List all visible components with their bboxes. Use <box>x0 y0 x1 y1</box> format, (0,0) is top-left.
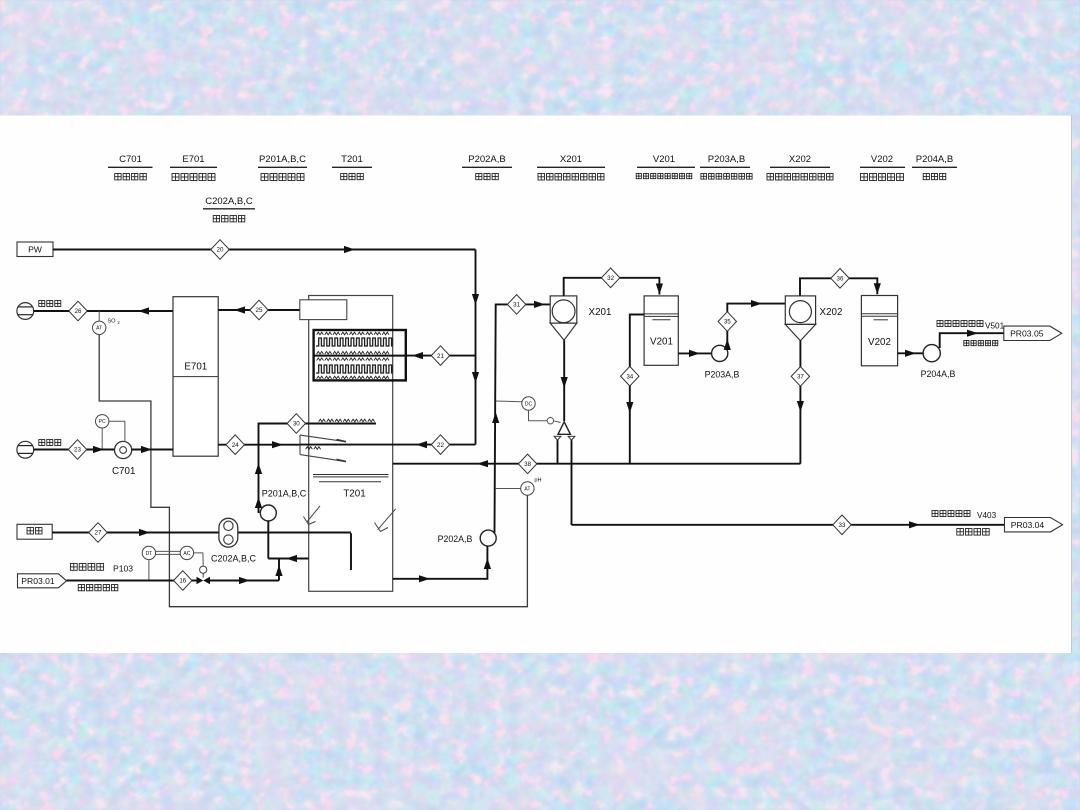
svg-text:P202A,B: P202A,B <box>438 534 473 544</box>
svg-text:V202: V202 <box>868 337 891 348</box>
svg-text:P204A,B: P204A,B <box>921 369 956 379</box>
svg-text:C202A,B,C: C202A,B,C <box>205 196 253 207</box>
svg-text:P204A,B: P204A,B <box>916 154 954 165</box>
svg-text:C202A,B,C: C202A,B,C <box>211 554 257 564</box>
svg-text:32: 32 <box>607 275 614 282</box>
svg-text:PC: PC <box>99 419 106 425</box>
svg-text:V201: V201 <box>650 337 673 348</box>
svg-text:38: 38 <box>524 461 531 468</box>
svg-text:C701: C701 <box>112 466 135 477</box>
svg-text:25: 25 <box>256 307 263 314</box>
svg-text:X202: X202 <box>820 307 843 318</box>
svg-text:X202: X202 <box>789 154 811 165</box>
svg-text:C701: C701 <box>119 154 142 165</box>
svg-text:E701: E701 <box>184 362 207 373</box>
svg-text:P203A,B: P203A,B <box>705 370 740 380</box>
svg-text:V403: V403 <box>977 511 997 520</box>
svg-text:T201: T201 <box>341 154 363 165</box>
svg-text:37: 37 <box>797 374 804 381</box>
svg-text:AC: AC <box>183 551 190 557</box>
svg-text:X201: X201 <box>560 154 582 165</box>
svg-text:PW: PW <box>28 245 43 255</box>
svg-text:V501: V501 <box>985 322 1005 331</box>
svg-text:AT: AT <box>96 326 102 332</box>
svg-text:AT: AT <box>524 486 530 492</box>
svg-text:21: 21 <box>437 353 444 360</box>
svg-text:24: 24 <box>232 442 239 449</box>
svg-text:16: 16 <box>179 578 186 585</box>
svg-text:T201: T201 <box>343 489 365 500</box>
svg-text:DT: DT <box>146 551 153 557</box>
svg-text:X201: X201 <box>589 307 612 318</box>
svg-text:SO: SO <box>107 319 116 325</box>
svg-text:P203A,B: P203A,B <box>708 154 746 165</box>
svg-text:23: 23 <box>74 447 81 454</box>
svg-text:20: 20 <box>217 247 224 254</box>
svg-text:pH: pH <box>534 478 541 484</box>
svg-text:PR03.05: PR03.05 <box>1010 329 1044 339</box>
svg-text:35: 35 <box>724 319 731 326</box>
svg-text:31: 31 <box>513 302 520 309</box>
svg-text:P103: P103 <box>113 564 133 574</box>
svg-text:34: 34 <box>626 373 633 380</box>
svg-text:26: 26 <box>75 308 82 315</box>
svg-text:PR03.01: PR03.01 <box>21 576 55 586</box>
svg-text:P201A,B,C: P201A,B,C <box>259 154 306 165</box>
svg-text:36: 36 <box>837 276 844 283</box>
svg-text:P201A,B,C: P201A,B,C <box>262 489 307 499</box>
svg-text:E701: E701 <box>182 154 204 165</box>
svg-text:33: 33 <box>839 522 846 529</box>
svg-text:P202A,B: P202A,B <box>468 154 506 165</box>
svg-text:PR03.04: PR03.04 <box>1011 520 1045 530</box>
svg-text:30: 30 <box>293 421 300 428</box>
svg-text:22: 22 <box>437 442 444 449</box>
svg-text:27: 27 <box>95 530 102 537</box>
svg-text:V201: V201 <box>653 154 675 165</box>
svg-text:V202: V202 <box>871 154 893 165</box>
svg-text:DC: DC <box>525 401 533 407</box>
